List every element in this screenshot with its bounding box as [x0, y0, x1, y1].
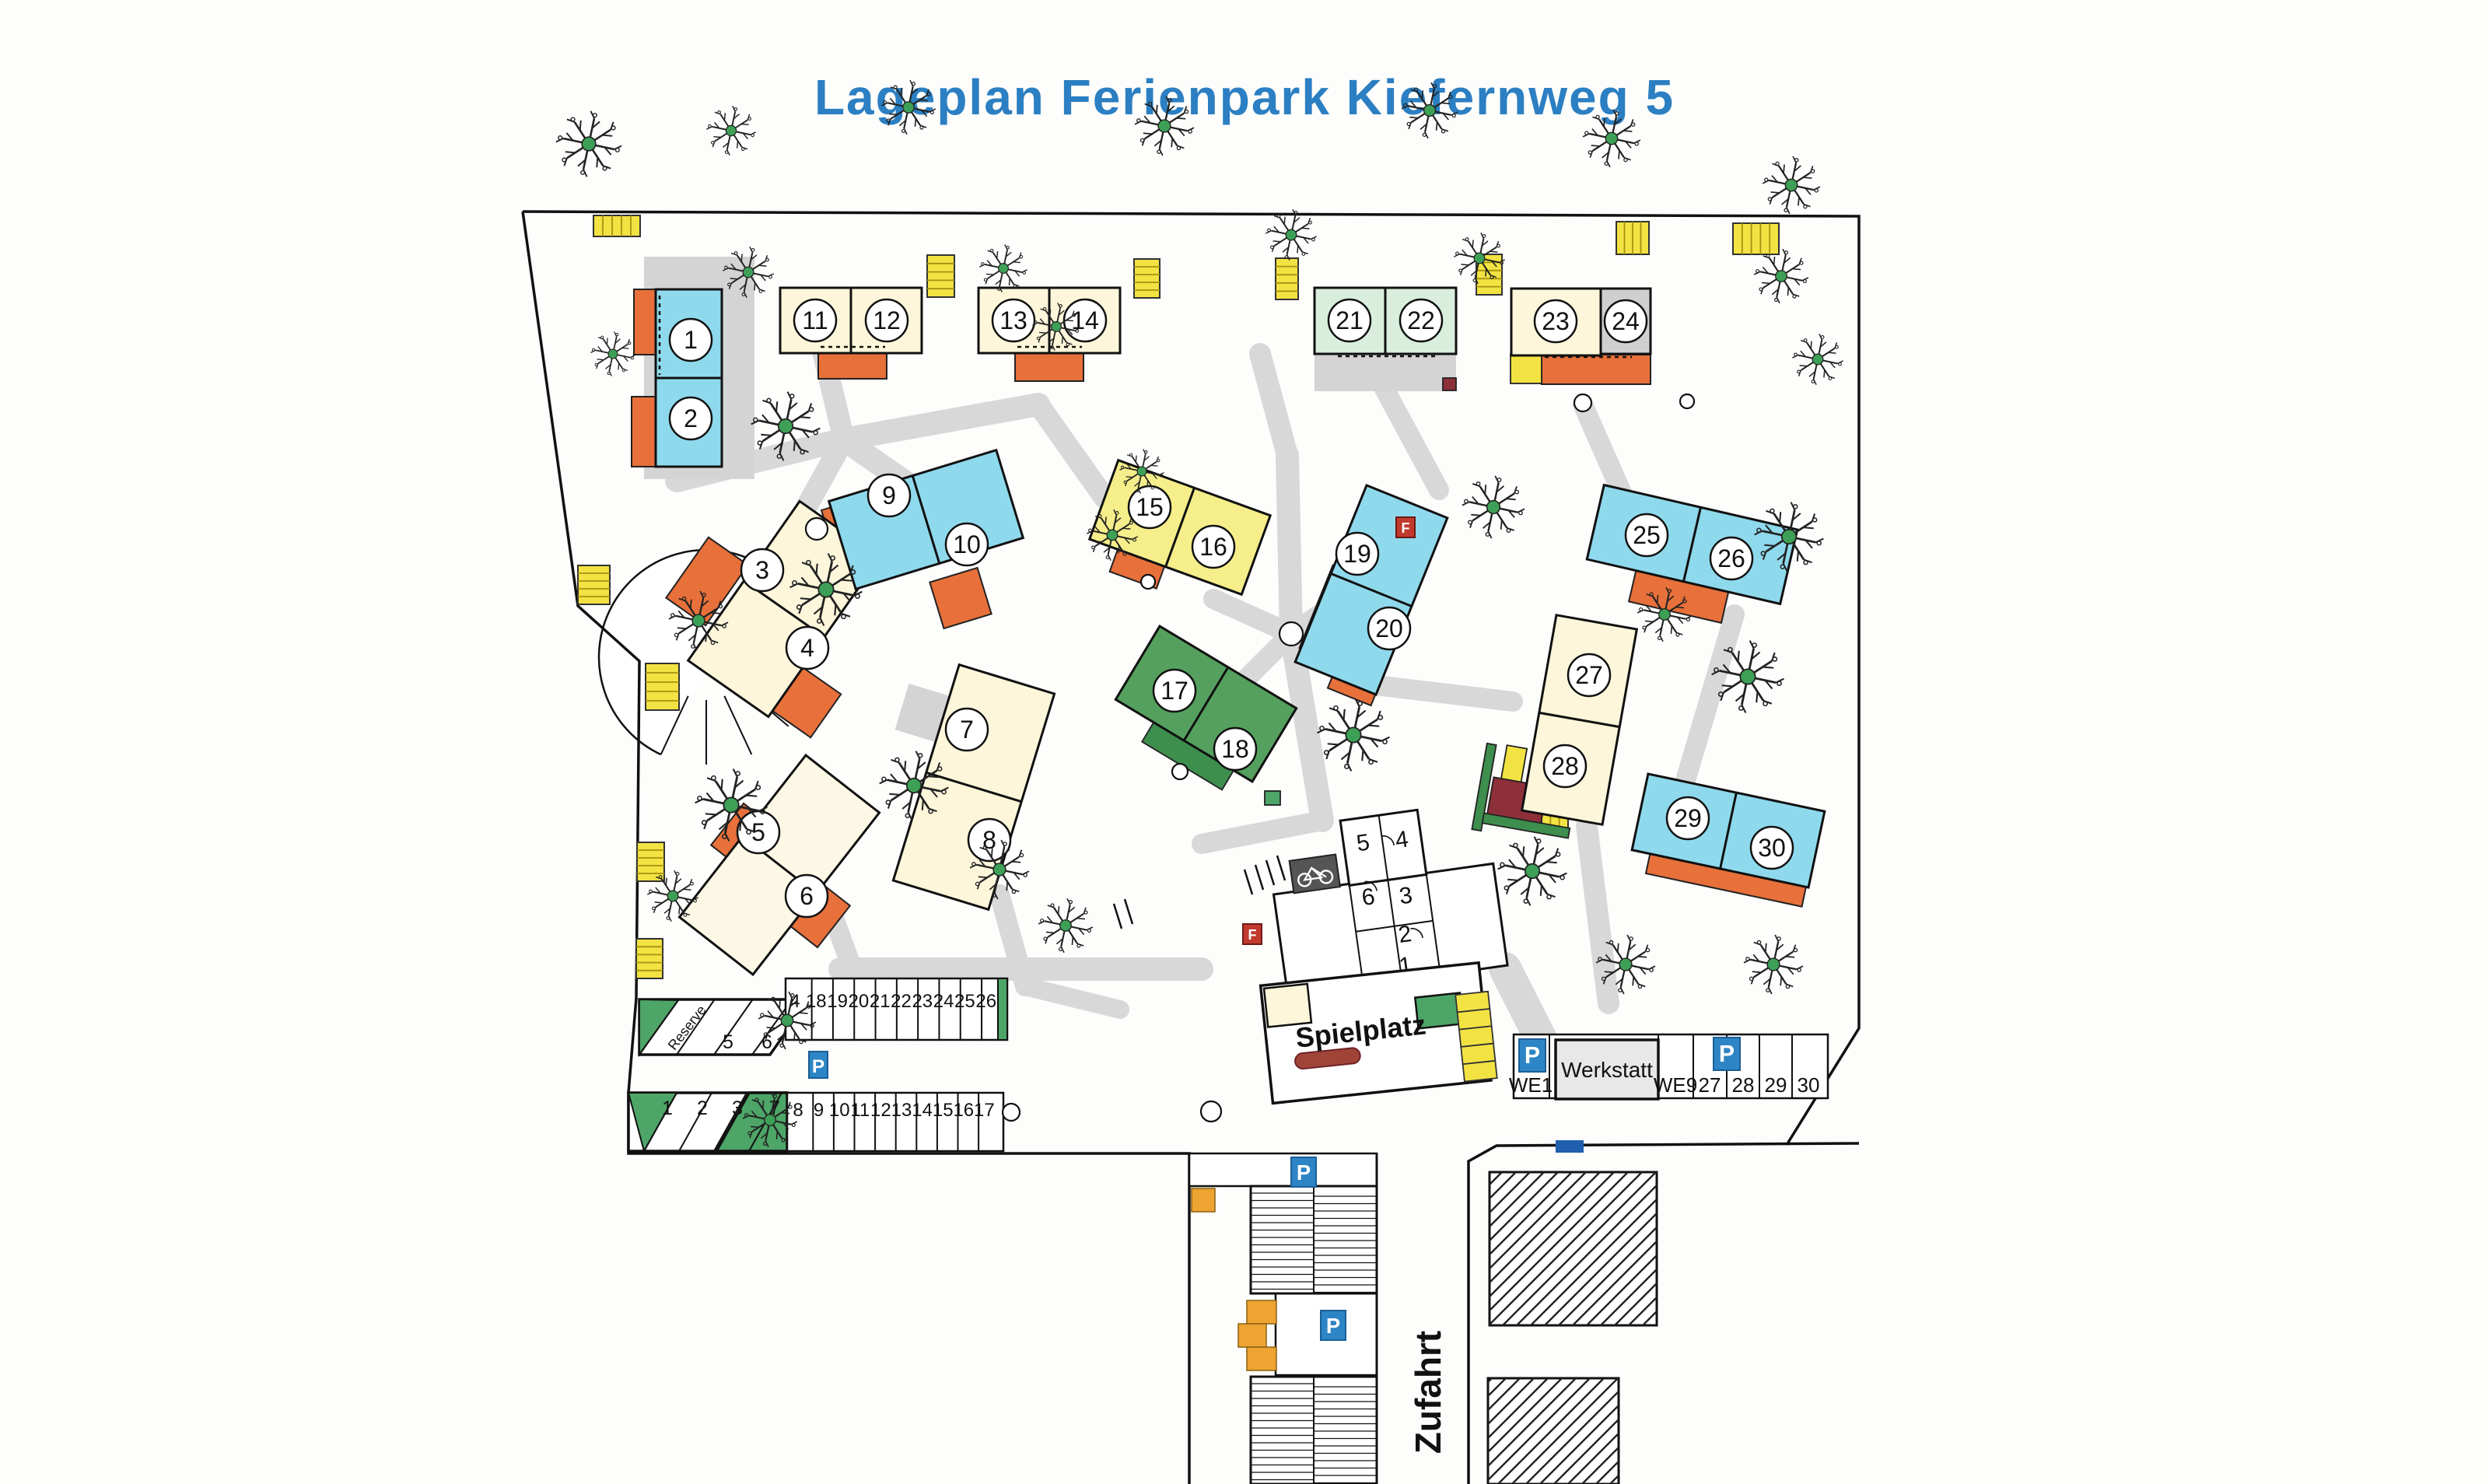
path-ticks [1114, 856, 1285, 929]
tree-icon [1135, 96, 1194, 156]
svg-text:22: 22 [1407, 306, 1435, 334]
tree-icon [1462, 476, 1525, 538]
svg-text:23: 23 [912, 991, 933, 1012]
unit-number: 16 [1192, 526, 1234, 568]
rack-icon [927, 255, 954, 297]
svg-text:14: 14 [912, 1100, 933, 1121]
unit-number: 10 [946, 523, 988, 565]
svg-text:3: 3 [732, 1097, 743, 1119]
unit-number: 5 [737, 811, 779, 853]
svg-text:24: 24 [1612, 307, 1640, 335]
svg-text:11: 11 [850, 1100, 870, 1121]
svg-text:P: P [812, 1056, 824, 1077]
unit-number: 28 [1544, 745, 1586, 787]
rack-icon [1276, 258, 1298, 299]
hatched-building [1490, 1172, 1657, 1325]
zufahrt-label: Zufahrt [1408, 1331, 1448, 1454]
green-patch [1265, 791, 1280, 805]
hydrant-icon: F [1396, 517, 1415, 537]
unit-number: 21 [1329, 299, 1371, 341]
unit-number: 15 [1129, 486, 1171, 528]
werkstatt-row: WerkstattWE1WE927282930 [1509, 1034, 1828, 1099]
tree-icon [1583, 110, 1640, 167]
bicycle-parking-icon [1290, 854, 1340, 893]
svg-text:28: 28 [1732, 1073, 1755, 1097]
tree-icon [881, 80, 936, 135]
svg-text:29: 29 [1765, 1073, 1787, 1097]
site-plan-page: Lageplan Ferienpark Kiefernweg 5 1234567… [0, 0, 2489, 1484]
shed-dark-red [1443, 378, 1456, 390]
hydrant-icon: F [1243, 924, 1262, 944]
tree-icon [1318, 699, 1390, 772]
svg-text:25: 25 [1633, 521, 1661, 549]
svg-text:P: P [1326, 1314, 1340, 1338]
unit-number: 27 [1568, 654, 1610, 696]
parking-sign-icon: P [1714, 1038, 1740, 1070]
unit-number: 23 [1535, 300, 1577, 342]
unit-number: 1 [670, 319, 712, 361]
rack-icon [593, 215, 640, 236]
rack-icon [646, 663, 679, 710]
svg-text:13: 13 [891, 1100, 912, 1121]
garage-complex [1189, 1153, 1377, 1484]
parking-sign-icon: P [1321, 1311, 1346, 1340]
svg-text:3: 3 [755, 556, 769, 584]
svg-text:7: 7 [960, 716, 974, 744]
house-9-10 [829, 450, 1024, 590]
tree-icon [1744, 935, 1803, 994]
site-plan-map: 1234567891011121314151617181920212223242… [0, 0, 2489, 1484]
tree-icon [979, 244, 1027, 292]
rack-icon [1134, 259, 1160, 298]
playground: Spielplatz [1261, 962, 1497, 1103]
svg-text:30: 30 [1758, 834, 1786, 862]
house-27-28 [1522, 615, 1637, 824]
house-19-20 [1295, 485, 1448, 695]
unit-number: 30 [1751, 827, 1793, 869]
svg-text:30: 30 [1798, 1073, 1820, 1097]
svg-text:23: 23 [1542, 307, 1570, 335]
svg-text:10: 10 [829, 1100, 850, 1121]
svg-text:24: 24 [933, 991, 954, 1012]
svg-text:8: 8 [793, 1100, 803, 1121]
svg-text:27: 27 [1699, 1073, 1721, 1097]
svg-text:5: 5 [723, 1031, 733, 1053]
rack-icon [636, 939, 663, 978]
svg-text:F: F [1402, 520, 1410, 536]
svg-text:9: 9 [882, 481, 896, 509]
unit-number: 24 [1605, 300, 1647, 342]
svg-text:17: 17 [974, 1100, 995, 1121]
hatched-building [1488, 1378, 1619, 1484]
unit-number: 20 [1368, 607, 1410, 649]
unit-number: 3 [741, 549, 783, 591]
svg-text:22: 22 [891, 991, 912, 1012]
svg-text:25: 25 [954, 991, 975, 1012]
svg-text:20: 20 [849, 991, 870, 1012]
tree-icon [1763, 156, 1820, 214]
tree-icon [1038, 898, 1093, 953]
unit-number: 13 [992, 299, 1034, 341]
svg-text:19: 19 [1343, 540, 1371, 568]
svg-text:29: 29 [1674, 804, 1702, 832]
svg-text:21: 21 [1336, 306, 1364, 334]
svg-text:F: F [1248, 927, 1257, 943]
svg-text:P: P [1719, 1041, 1735, 1067]
tree-icon [591, 332, 635, 376]
svg-text:4: 4 [800, 634, 814, 662]
tree-icon [556, 111, 621, 177]
unit-number: 11 [794, 299, 836, 341]
unit-number: 18 [1214, 728, 1256, 770]
svg-text:16: 16 [1199, 533, 1227, 561]
unit-number: 6 [786, 875, 828, 917]
parking-sign-icon: P [1519, 1039, 1546, 1072]
unit-number: 7 [946, 709, 988, 751]
svg-text:Werkstatt: Werkstatt [1561, 1058, 1653, 1082]
tree-icon [1792, 334, 1843, 384]
parking-sign-icon: P [1291, 1157, 1316, 1187]
svg-text:15: 15 [933, 1100, 954, 1121]
rack-icon [578, 565, 610, 604]
svg-text:26: 26 [975, 991, 996, 1012]
svg-text:27: 27 [1575, 661, 1603, 689]
svg-text:1: 1 [662, 1097, 673, 1119]
svg-text:2: 2 [697, 1097, 708, 1119]
werkstatt-building: Werkstatt [1556, 1040, 1658, 1099]
yellow-pad-23 [1511, 354, 1542, 383]
svg-text:10: 10 [953, 530, 981, 558]
svg-text:6: 6 [800, 882, 814, 910]
unit-number: 19 [1336, 533, 1378, 575]
svg-text:11: 11 [802, 306, 828, 334]
svg-text:13: 13 [999, 306, 1027, 334]
tree-icon [1498, 837, 1567, 906]
svg-text:19: 19 [827, 991, 848, 1012]
unit-number: 25 [1626, 514, 1668, 556]
tree-icon [706, 106, 755, 155]
tree-icon [1754, 249, 1808, 303]
tree-icon [1266, 209, 1316, 260]
svg-text:18: 18 [1221, 735, 1249, 763]
svg-text:1: 1 [684, 326, 698, 354]
rack-icon [1616, 222, 1649, 254]
svg-text:20: 20 [1375, 614, 1403, 642]
access-area: Zufahrt [1408, 1140, 1859, 1484]
svg-text:12: 12 [870, 1100, 891, 1121]
svg-text:2: 2 [684, 404, 698, 432]
parking-sign-icon: P [809, 1052, 828, 1078]
svg-text:9: 9 [814, 1100, 824, 1121]
svg-text:17: 17 [1160, 677, 1188, 705]
svg-text:P: P [1525, 1043, 1540, 1069]
unit-number: 22 [1400, 299, 1442, 341]
unit-number: 29 [1667, 797, 1709, 839]
tree-icon [1402, 82, 1458, 138]
unit-number: 9 [868, 474, 910, 516]
svg-text:15: 15 [1136, 493, 1164, 521]
svg-text:12: 12 [873, 306, 901, 334]
svg-text:26: 26 [1717, 544, 1745, 572]
unit-number: 26 [1710, 537, 1752, 579]
svg-text:WE9: WE9 [1654, 1073, 1697, 1097]
svg-text:16: 16 [953, 1100, 974, 1121]
svg-text:28: 28 [1551, 752, 1579, 780]
unit-number: 17 [1153, 670, 1195, 712]
unit-number: 4 [786, 627, 828, 669]
rack-icon [1733, 223, 1779, 254]
unit-number: 12 [866, 299, 908, 341]
svg-text:P: P [1297, 1160, 1311, 1185]
unit-number: 2 [670, 397, 712, 439]
svg-text:21: 21 [870, 991, 891, 1012]
svg-text:WE1: WE1 [1509, 1073, 1553, 1097]
